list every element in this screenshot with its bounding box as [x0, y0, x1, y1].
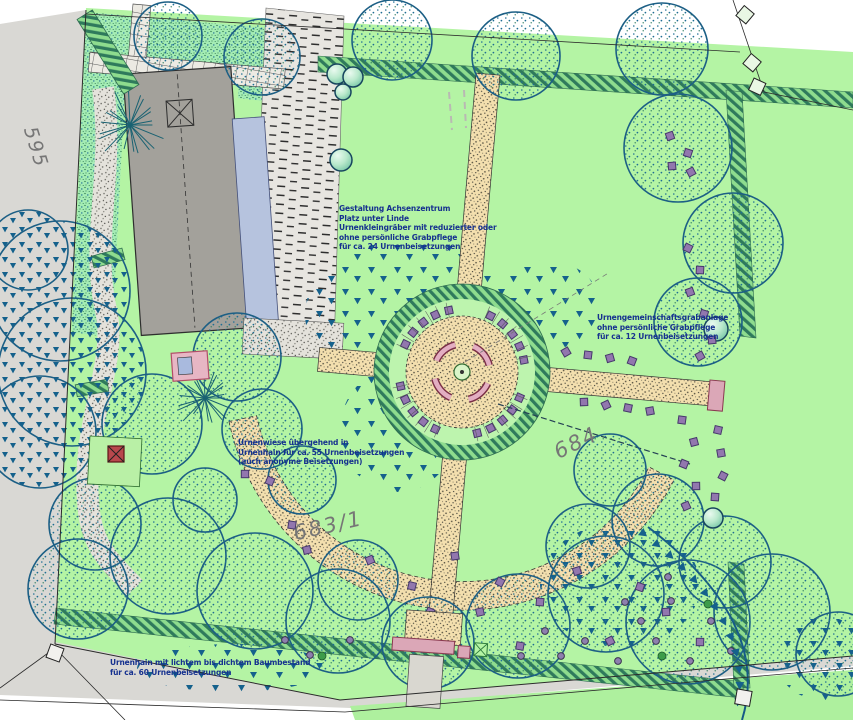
- urn-grave-marker: [646, 407, 655, 416]
- tree-symbol: [134, 2, 202, 70]
- annotation-line: Urnenhain für ca. 55 Urnenbeisetzungen: [238, 448, 404, 458]
- plaza-urn-grave: [473, 429, 482, 438]
- urn-grave-marker: [635, 582, 644, 591]
- annotation-gemeinschaftsgrab: Urnengemeinschaftsgrabanlage ohne persön…: [597, 313, 728, 342]
- annotation-line: Urnenwiese übergehend in: [238, 438, 404, 448]
- community-grave-dot: [687, 658, 694, 665]
- community-grave-dot: [708, 618, 715, 625]
- tree-symbol: [472, 12, 560, 100]
- community-grave-dot: [347, 637, 354, 644]
- community-grave-dot: [653, 638, 660, 645]
- annotation-urnenhain: Urnenhain mit lichtem bis dichtem Baumbe…: [110, 658, 310, 677]
- community-grave-dot: [622, 599, 629, 606]
- plan-drawing: [0, 0, 853, 720]
- urn-grave-marker: [683, 148, 692, 157]
- annotation-line: Platz unter Linde: [339, 214, 497, 224]
- community-grave-dot: [518, 653, 525, 660]
- annotation-line: ohne persönliche Grabpflege: [339, 233, 497, 243]
- tree-symbol: [679, 516, 771, 608]
- urn-grave-marker: [516, 642, 525, 651]
- urn-grave-marker: [241, 470, 248, 477]
- urn-grave-marker: [717, 449, 726, 458]
- plaza-urn-grave: [445, 306, 454, 315]
- urn-grave-marker: [689, 437, 698, 446]
- annotation-line: für ca. 60 Urnenbeisetzungen: [110, 668, 310, 678]
- urn-grave-marker: [584, 351, 592, 359]
- urn-grave-marker: [580, 398, 588, 406]
- tree-symbol: [28, 539, 128, 639]
- urn-grave-marker: [303, 546, 312, 555]
- community-grave-dot: [558, 653, 565, 660]
- urn-grave-marker: [572, 566, 581, 575]
- sphere-tree-symbol: [703, 508, 723, 528]
- sphere-tree-symbol: [335, 84, 351, 100]
- tree-symbol: [352, 0, 432, 80]
- urn-grave-marker: [665, 131, 674, 140]
- urn-grave-marker: [605, 353, 614, 362]
- annotation-line: Urnenkleingräber mit reduzierter oder: [339, 223, 497, 233]
- annotation-line: für ca. 24 Urnenbeisetzungen: [339, 242, 497, 252]
- tree-symbol: [318, 540, 398, 620]
- community-grave-dot: [638, 618, 645, 625]
- annotation-line: ohne persönliche Grabpflege: [597, 323, 728, 333]
- new-tree-dot: [318, 652, 326, 660]
- new-tree-dot: [658, 652, 666, 660]
- urn-grave-marker: [662, 608, 670, 616]
- boundary-marker-se: [735, 689, 752, 706]
- urn-grave-marker: [696, 266, 704, 274]
- annotation-line: (auch anonyme Beisetzungen): [238, 457, 404, 467]
- community-grave-dot: [665, 574, 672, 581]
- tree-symbol: [624, 94, 732, 202]
- urn-grave-marker: [476, 608, 485, 617]
- annotation-urnenwiese: Urnenwiese übergehend in Urnenhain für c…: [238, 438, 404, 467]
- east-path-terminus: [707, 380, 725, 411]
- urn-grave-marker: [696, 638, 704, 646]
- urn-grave-marker: [451, 552, 459, 560]
- site-plan: Gestaltung Achsenzentrum Platz unter Lin…: [0, 0, 853, 720]
- well-structure: [171, 351, 209, 381]
- urn-grave-marker: [668, 162, 676, 170]
- memorial-marker: [108, 446, 124, 462]
- urn-grave-marker: [692, 482, 700, 490]
- community-grave-dot: [282, 637, 289, 644]
- urn-grave-marker: [711, 493, 719, 501]
- annotation-line: Gestaltung Achsenzentrum: [339, 204, 497, 214]
- annotation-line: für ca. 12 Urnenbeisetzungen: [597, 332, 728, 342]
- annotation-line: Urnengemeinschaftsgrabanlage: [597, 313, 728, 323]
- community-grave-dot: [615, 658, 622, 665]
- community-grave-dot: [582, 638, 589, 645]
- urn-grave-marker: [678, 416, 686, 424]
- annotation-achsenzentrum: Gestaltung Achsenzentrum Platz unter Lin…: [339, 204, 497, 252]
- sphere-tree-symbol: [330, 149, 352, 171]
- urn-grave-marker: [714, 426, 723, 435]
- existing-building: [123, 67, 249, 336]
- community-grave-dot: [668, 598, 675, 605]
- urn-grave-marker: [408, 582, 417, 591]
- annotation-line: Urnenhain mit lichtem bis dichtem Baumbe…: [110, 658, 310, 668]
- urn-grave-marker: [624, 404, 633, 413]
- tree-symbol: [224, 19, 300, 95]
- urn-grave-marker: [536, 598, 544, 606]
- community-grave-dot: [542, 628, 549, 635]
